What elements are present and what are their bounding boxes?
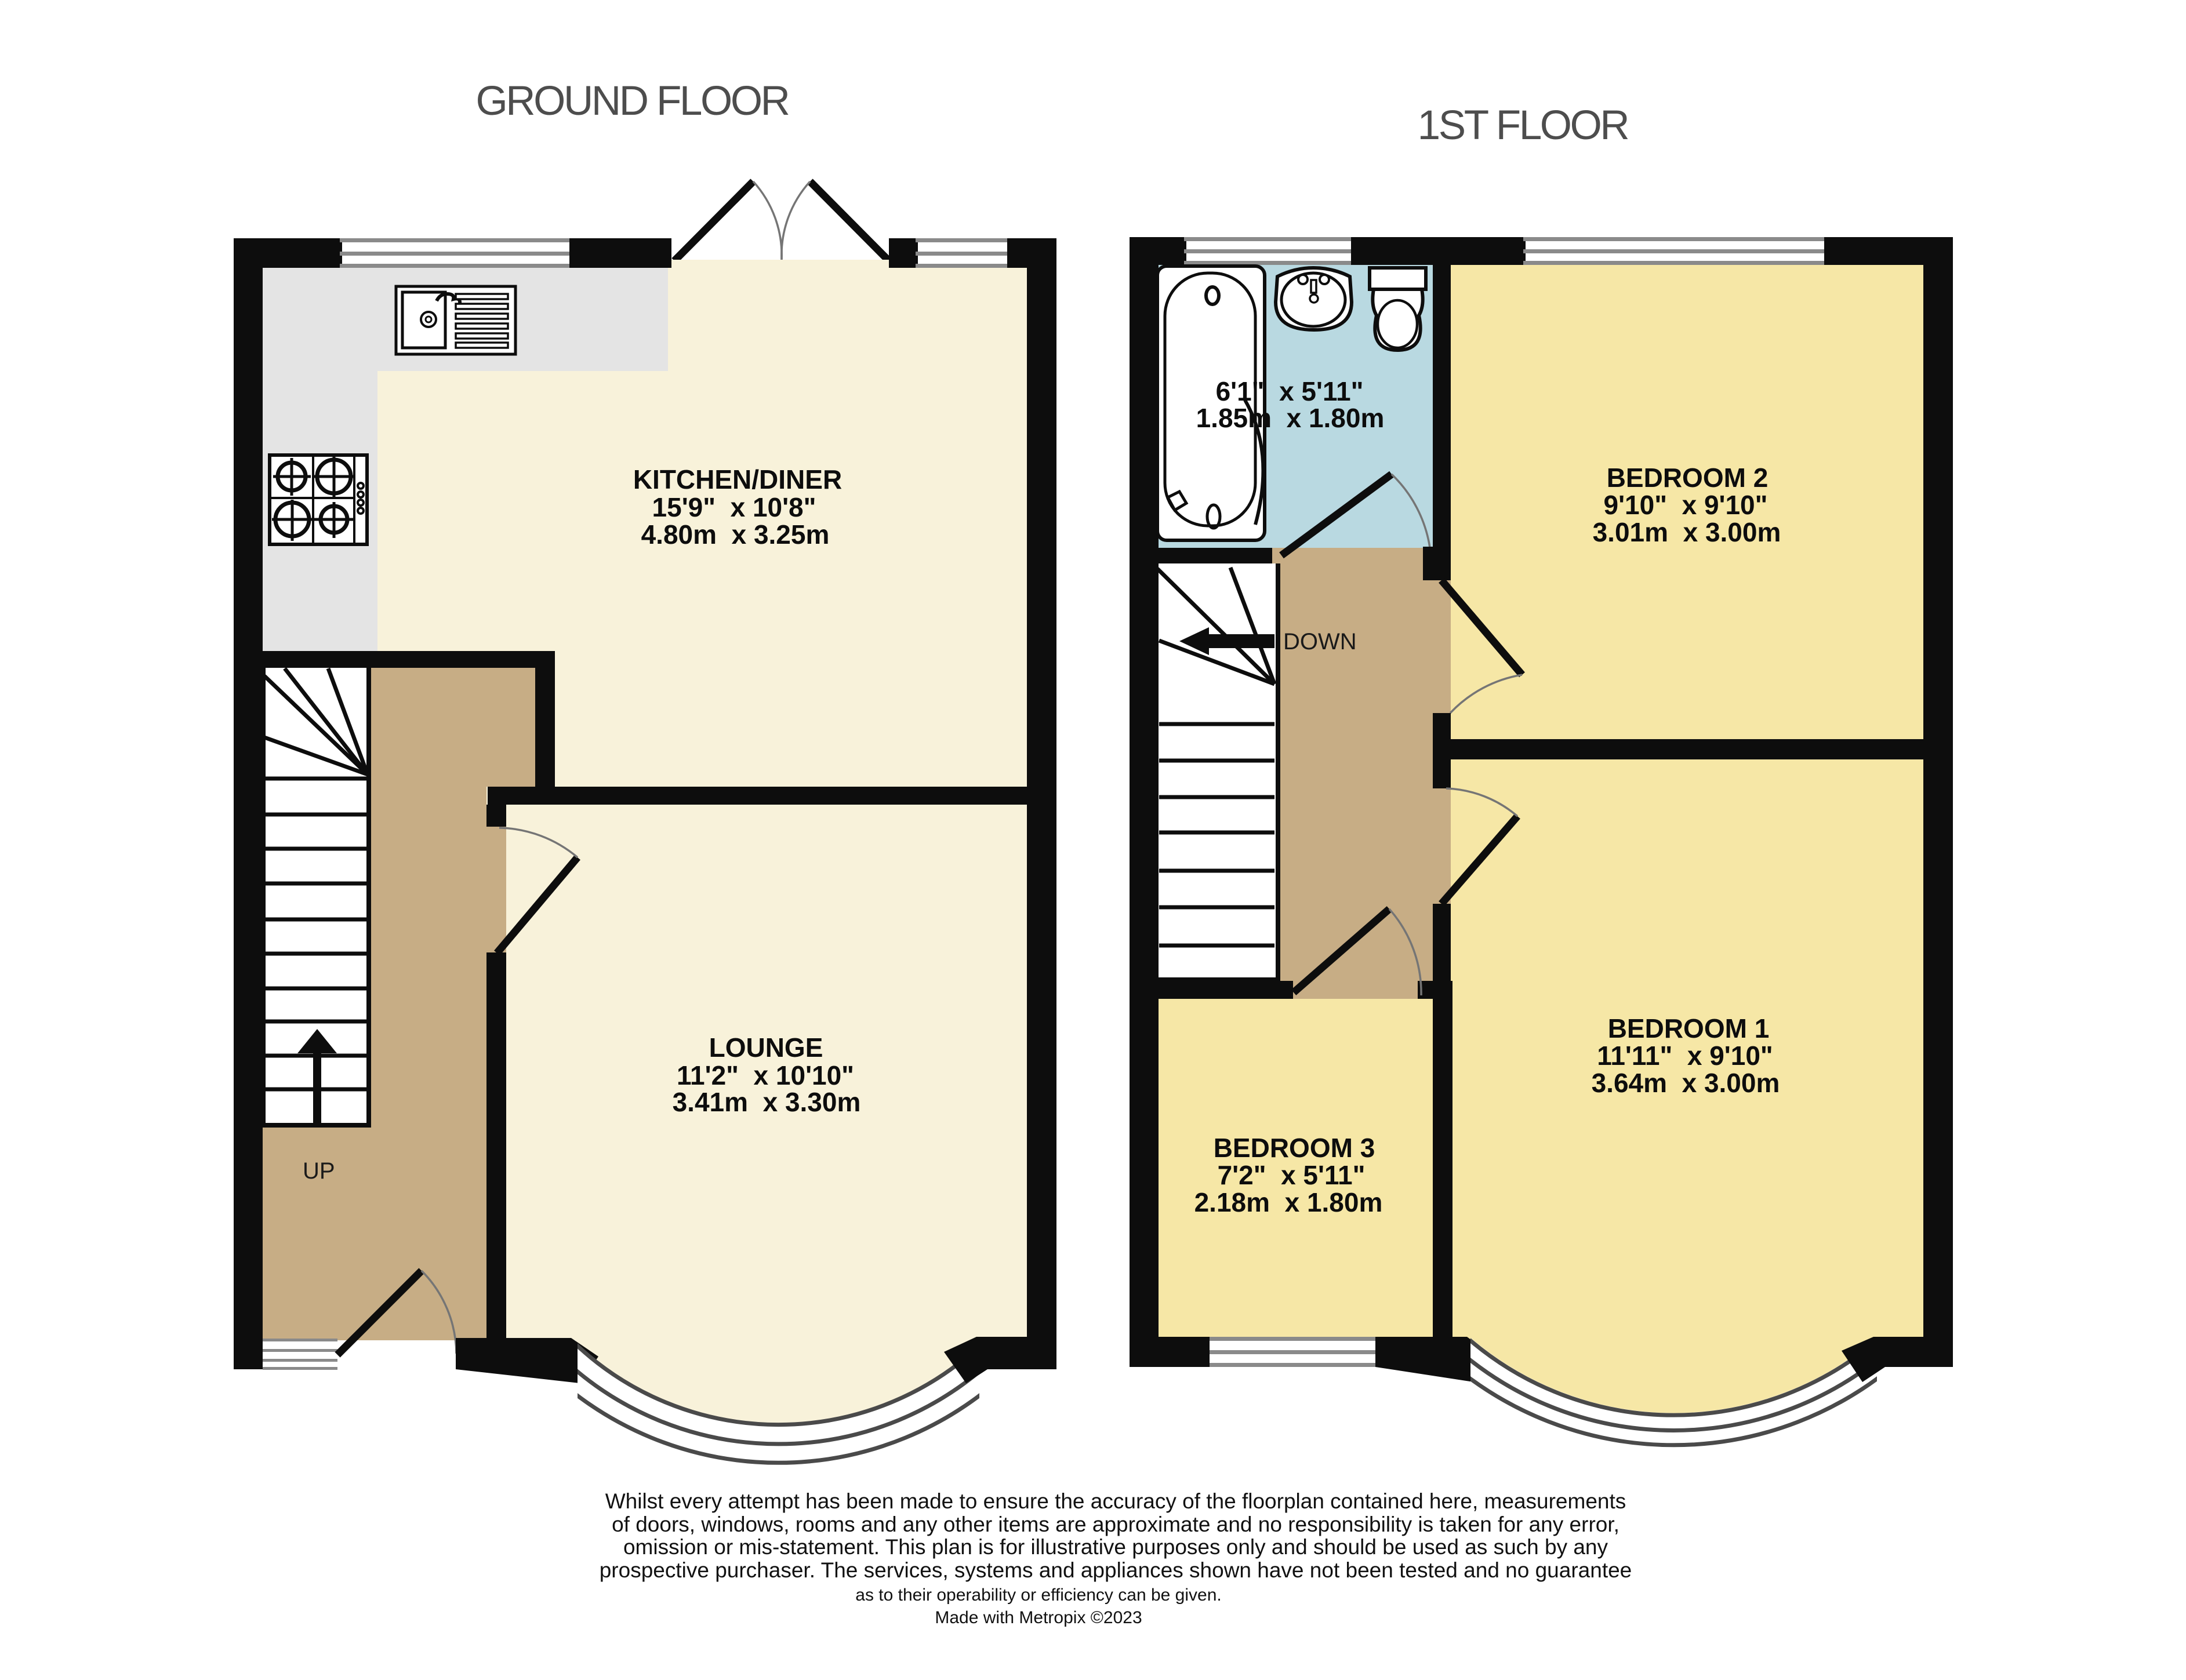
svg-text:6'1" x 5'11": 6'1" x 5'11" xyxy=(1216,376,1364,406)
svg-text:7'2" x 5'11": 7'2" x 5'11" xyxy=(1218,1160,1366,1190)
svg-text:BEDROOM 3: BEDROOM 3 xyxy=(1214,1133,1375,1163)
svg-text:11'2" x 10'10": 11'2" x 10'10" xyxy=(677,1060,854,1090)
svg-text:Whilst every attempt has been: Whilst every attempt has been made to en… xyxy=(605,1489,1626,1513)
svg-text:1.85m x 1.80m: 1.85m x 1.80m xyxy=(1196,403,1385,433)
svg-text:3.64m x 3.00m: 3.64m x 3.00m xyxy=(1592,1068,1780,1098)
svg-text:of doors, windows, rooms and a: of doors, windows, rooms and any other i… xyxy=(612,1512,1619,1536)
svg-text:BEDROOM 2: BEDROOM 2 xyxy=(1607,463,1769,493)
svg-text:9'10" x 9'10": 9'10" x 9'10" xyxy=(1604,490,1768,520)
svg-text:11'11" x 9'10": 11'11" x 9'10" xyxy=(1597,1041,1773,1071)
svg-text:prospective purchaser. The ser: prospective purchaser. The services, sys… xyxy=(600,1558,1632,1582)
svg-text:2.18m x 1.80m: 2.18m x 1.80m xyxy=(1194,1187,1383,1217)
svg-text:as to their operability or eff: as to their operability or efficiency ca… xyxy=(855,1586,1221,1605)
svg-text:4.80m x 3.25m: 4.80m x 3.25m xyxy=(641,519,830,550)
svg-text:LOUNGE: LOUNGE xyxy=(709,1032,823,1063)
svg-text:BEDROOM 1: BEDROOM 1 xyxy=(1608,1013,1770,1043)
svg-text:omission or mis-statement. Thi: omission or mis-statement. This plan is … xyxy=(623,1535,1608,1559)
svg-text:3.01m x 3.00m: 3.01m x 3.00m xyxy=(1593,517,1781,547)
svg-text:DOWN: DOWN xyxy=(1283,629,1357,654)
svg-text:KITCHEN/DINER: KITCHEN/DINER xyxy=(633,464,842,494)
svg-text:15'9" x 10'8": 15'9" x 10'8" xyxy=(652,492,816,522)
svg-text:GROUND FLOOR: GROUND FLOOR xyxy=(475,78,788,124)
svg-text:3.41m x 3.30m: 3.41m x 3.30m xyxy=(673,1087,861,1117)
svg-text:Made with Metropix ©2023: Made with Metropix ©2023 xyxy=(935,1608,1142,1627)
svg-text:UP: UP xyxy=(303,1158,335,1184)
svg-text:1ST FLOOR: 1ST FLOOR xyxy=(1418,103,1628,148)
